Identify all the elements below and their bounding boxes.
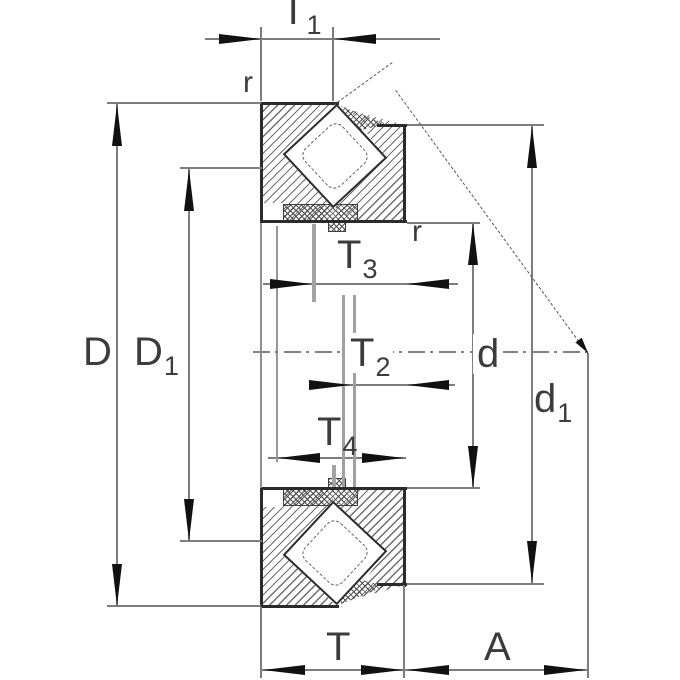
label-T2: T2 bbox=[346, 333, 393, 373]
roller-top-profile-dashed bbox=[298, 119, 371, 192]
ext-line-T-left bbox=[260, 607, 262, 678]
arrow-D-bottom bbox=[112, 564, 122, 606]
left-face-edge-bottom bbox=[260, 487, 263, 608]
bearing-dimension-drawing: T1 r D D1 T3 r T2 d T4 d1 T A bbox=[0, 0, 680, 680]
label-T: T bbox=[326, 627, 350, 667]
label-D1: D1 bbox=[134, 332, 178, 372]
ext-line-A-right bbox=[587, 353, 589, 678]
ext-line-bore-left bbox=[260, 223, 262, 488]
arrow-A-left bbox=[407, 665, 449, 675]
arrow-T4-right bbox=[362, 453, 404, 463]
right-face-edge-top bbox=[403, 124, 406, 223]
ext-line-D-top bbox=[107, 102, 261, 104]
ext-line-d1-top bbox=[407, 124, 544, 126]
arrow-d-bottom bbox=[468, 446, 478, 488]
arrow-T-right bbox=[361, 665, 403, 675]
bore-face-edge-top bbox=[260, 220, 407, 223]
arrow-A-right bbox=[544, 665, 586, 675]
dim-line-D1 bbox=[188, 168, 190, 542]
arrow-T-left bbox=[263, 665, 305, 675]
arrow-d-top bbox=[468, 223, 478, 265]
label-r-bore: r bbox=[412, 217, 422, 247]
ext-line-mid-b bbox=[332, 465, 336, 487]
arrow-T1-left bbox=[219, 34, 261, 44]
washer-pocket-bottom bbox=[262, 489, 282, 507]
right-face-edge-bottom bbox=[403, 487, 406, 587]
label-T4: T4 bbox=[317, 412, 356, 452]
ext-line-T3-left bbox=[312, 224, 316, 302]
ext-line-D-bottom bbox=[107, 605, 261, 607]
roller-axis-dashed-line bbox=[333, 62, 393, 106]
left-face-edge-top bbox=[260, 102, 263, 223]
arrow-T2-left bbox=[309, 380, 351, 390]
roller-bottom-profile-dashed bbox=[298, 516, 371, 589]
ext-line-T-right bbox=[403, 585, 405, 678]
label-d: d bbox=[473, 334, 503, 374]
label-d1: d1 bbox=[534, 379, 571, 419]
arrow-T3-right bbox=[407, 279, 449, 289]
arrow-T1-right bbox=[334, 34, 376, 44]
housing-face-edge-top bbox=[377, 124, 407, 127]
label-r-top: r bbox=[243, 68, 253, 98]
label-T1: T1 bbox=[281, 0, 320, 31]
arrow-T4-left bbox=[278, 453, 320, 463]
ext-line-d1-bottom bbox=[407, 583, 544, 585]
bore-face-edge-bottom bbox=[260, 487, 407, 490]
arrow-d1-bottom bbox=[527, 541, 537, 583]
arrow-D1-bottom bbox=[184, 499, 194, 541]
ext-line-T4-left bbox=[276, 226, 278, 462]
washer-pocket-top bbox=[262, 203, 282, 221]
arrow-D1-top bbox=[184, 169, 194, 211]
arrow-D-top bbox=[112, 104, 122, 146]
center-axis-line bbox=[253, 351, 592, 353]
arrow-T3-left bbox=[270, 279, 312, 289]
label-D: D bbox=[83, 332, 112, 372]
arrow-T2-right bbox=[407, 380, 449, 390]
label-A: A bbox=[484, 627, 511, 667]
dim-line-d1 bbox=[531, 125, 533, 584]
dim-line-D bbox=[116, 103, 118, 607]
bottom-face-edge bbox=[261, 605, 339, 608]
top-face-edge bbox=[261, 102, 339, 105]
arrow-d1-top bbox=[527, 126, 537, 168]
label-T3: T3 bbox=[337, 235, 376, 275]
